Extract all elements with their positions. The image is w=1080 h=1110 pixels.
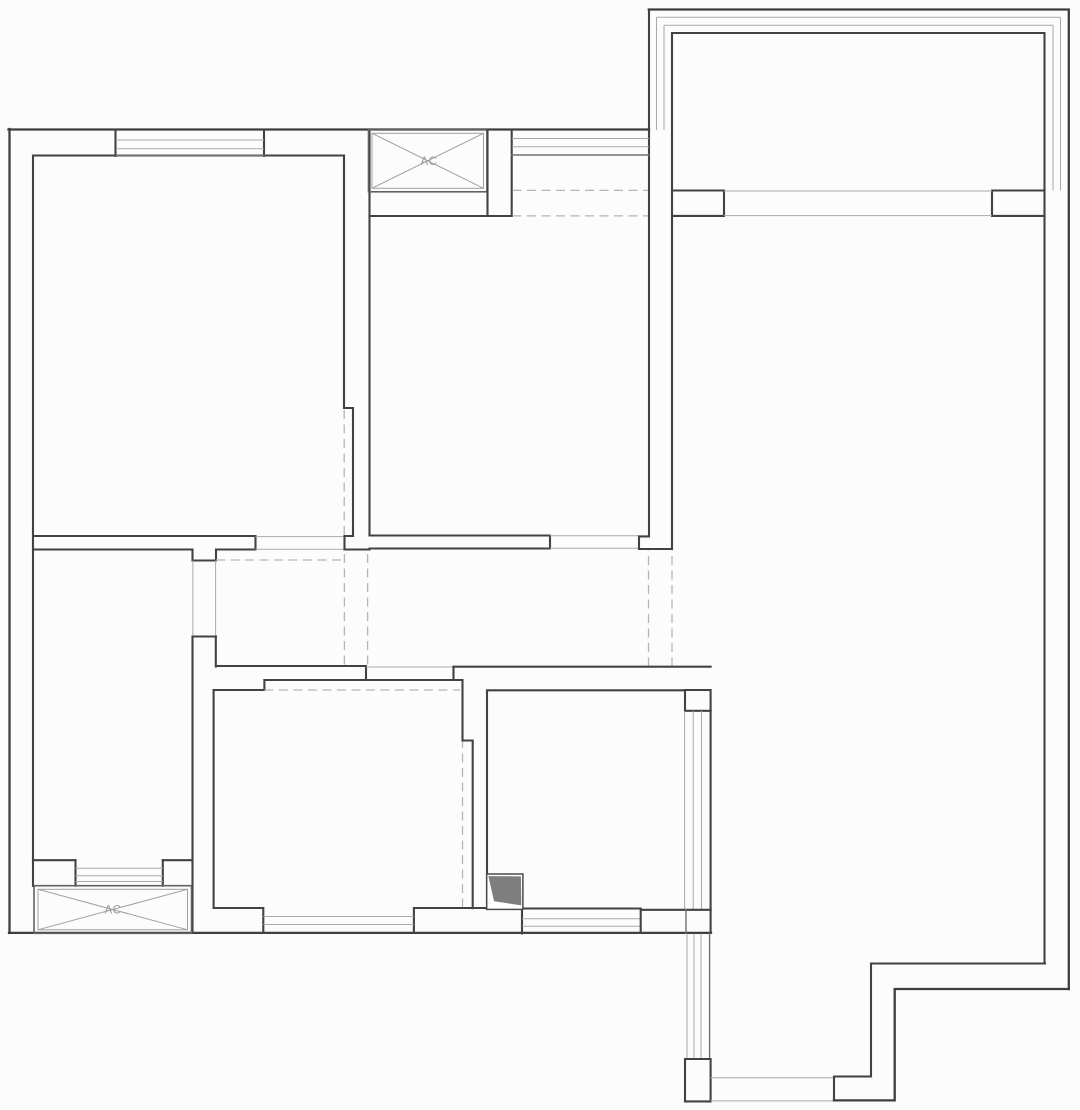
svg-text:AC: AC xyxy=(105,905,122,917)
svg-text:AC: AC xyxy=(421,156,438,168)
